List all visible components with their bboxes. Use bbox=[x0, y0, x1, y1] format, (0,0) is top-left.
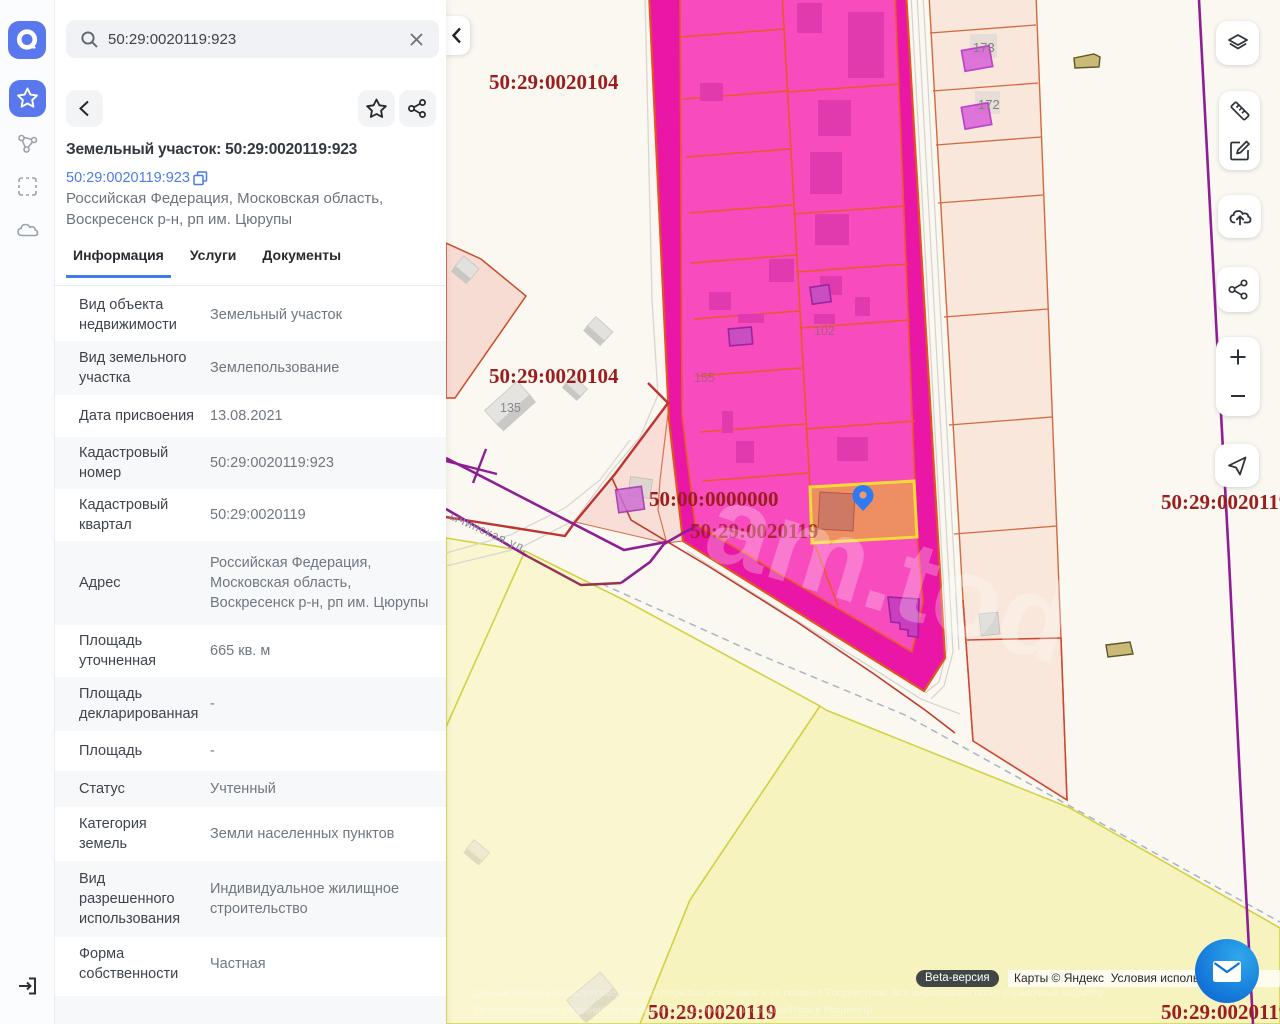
svg-text:173: 173 bbox=[973, 40, 995, 55]
svg-text:135: 135 bbox=[500, 401, 521, 415]
svg-text:155: 155 bbox=[694, 371, 715, 385]
svg-text:102: 102 bbox=[814, 324, 835, 338]
svg-text:172: 172 bbox=[978, 97, 1000, 112]
svg-text:50:29:0020119: 50:29:0020119 bbox=[1161, 490, 1280, 514]
svg-text:50:29:0020104: 50:29:0020104 bbox=[489, 364, 619, 388]
svg-text:50:29:0020104: 50:29:0020104 bbox=[489, 70, 619, 94]
